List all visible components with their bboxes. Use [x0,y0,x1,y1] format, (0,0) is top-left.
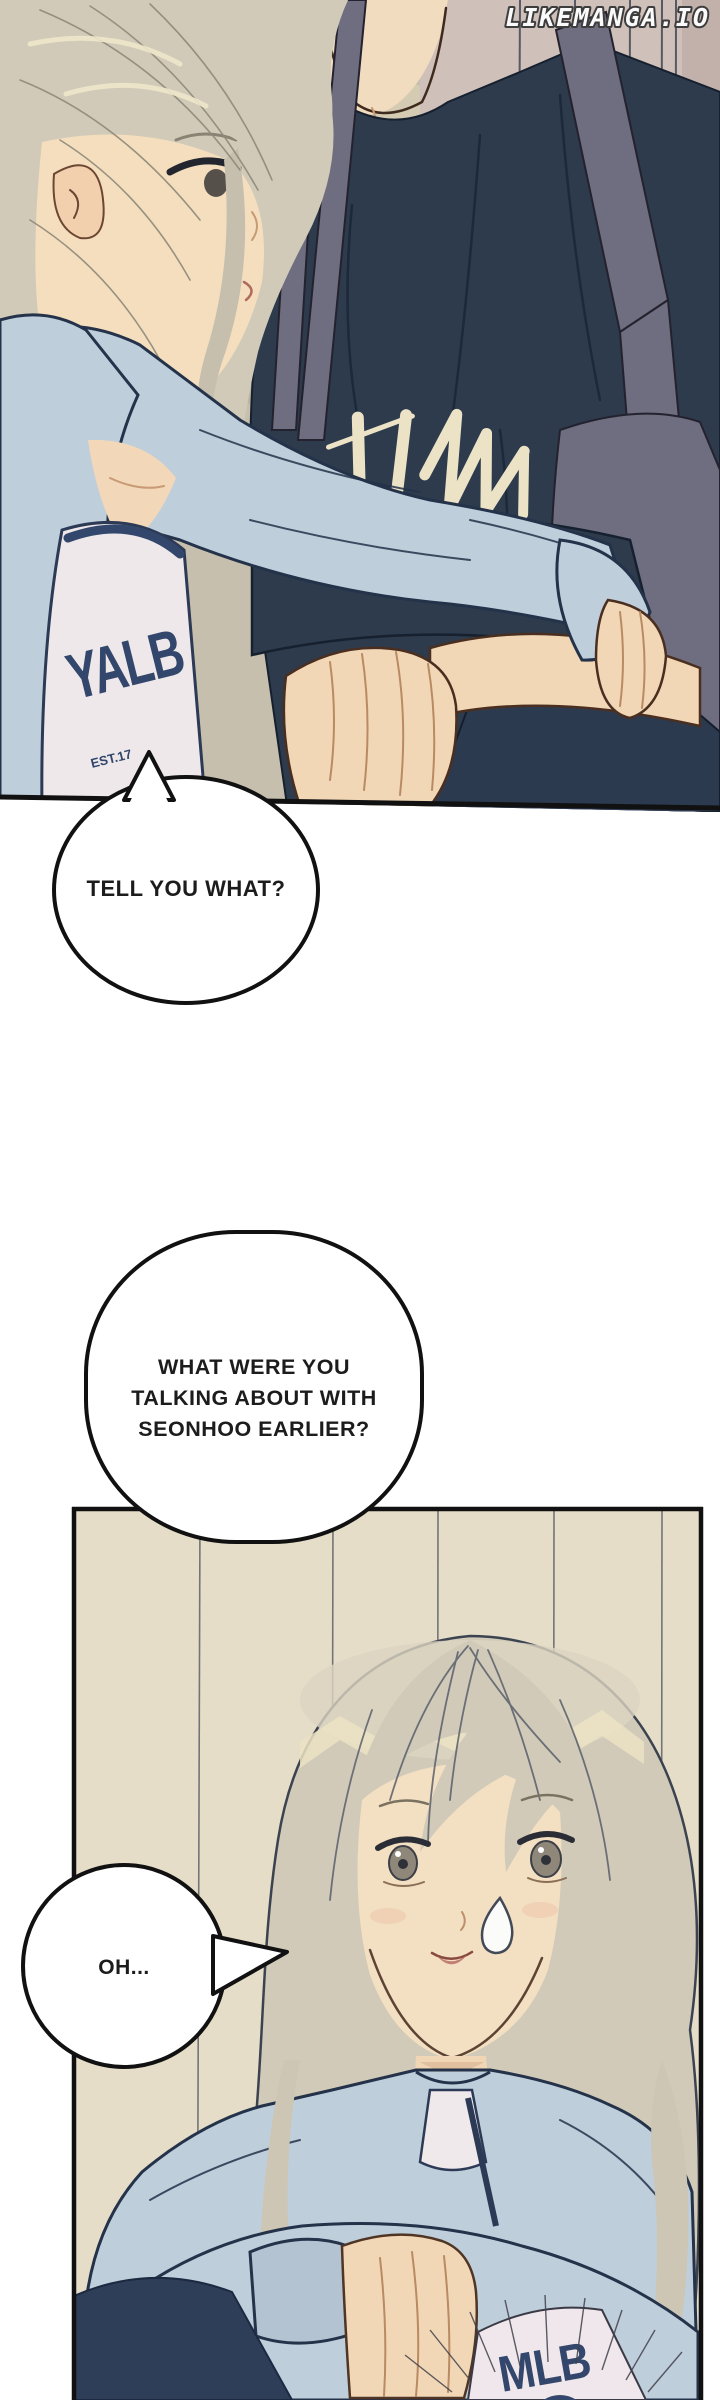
bubble2-line3: SEONHOO EARLIER? [138,1417,369,1441]
bubble2-line1: WHAT WERE YOU [158,1355,350,1379]
manga-artboard: YALB EST.17 [0,0,720,2400]
panel-1-artwork: YALB EST.17 [0,0,720,812]
manga-page: YALB EST.17 [0,0,720,2400]
girl2-hand [342,2235,477,2398]
boy-hand [284,648,457,806]
bubble2-line2: TALKING ABOUT WITH [131,1386,376,1410]
site-watermark: LIKEMANGA.IO [505,3,710,32]
girl-eye-iris [204,169,228,197]
bubble3-text: OH... [98,1956,150,1979]
speech-bubble-2: WHAT WERE YOU TALKING ABOUT WITH SEONHOO… [86,1232,422,1542]
bubble1-text: TELL YOU WHAT? [87,876,286,901]
